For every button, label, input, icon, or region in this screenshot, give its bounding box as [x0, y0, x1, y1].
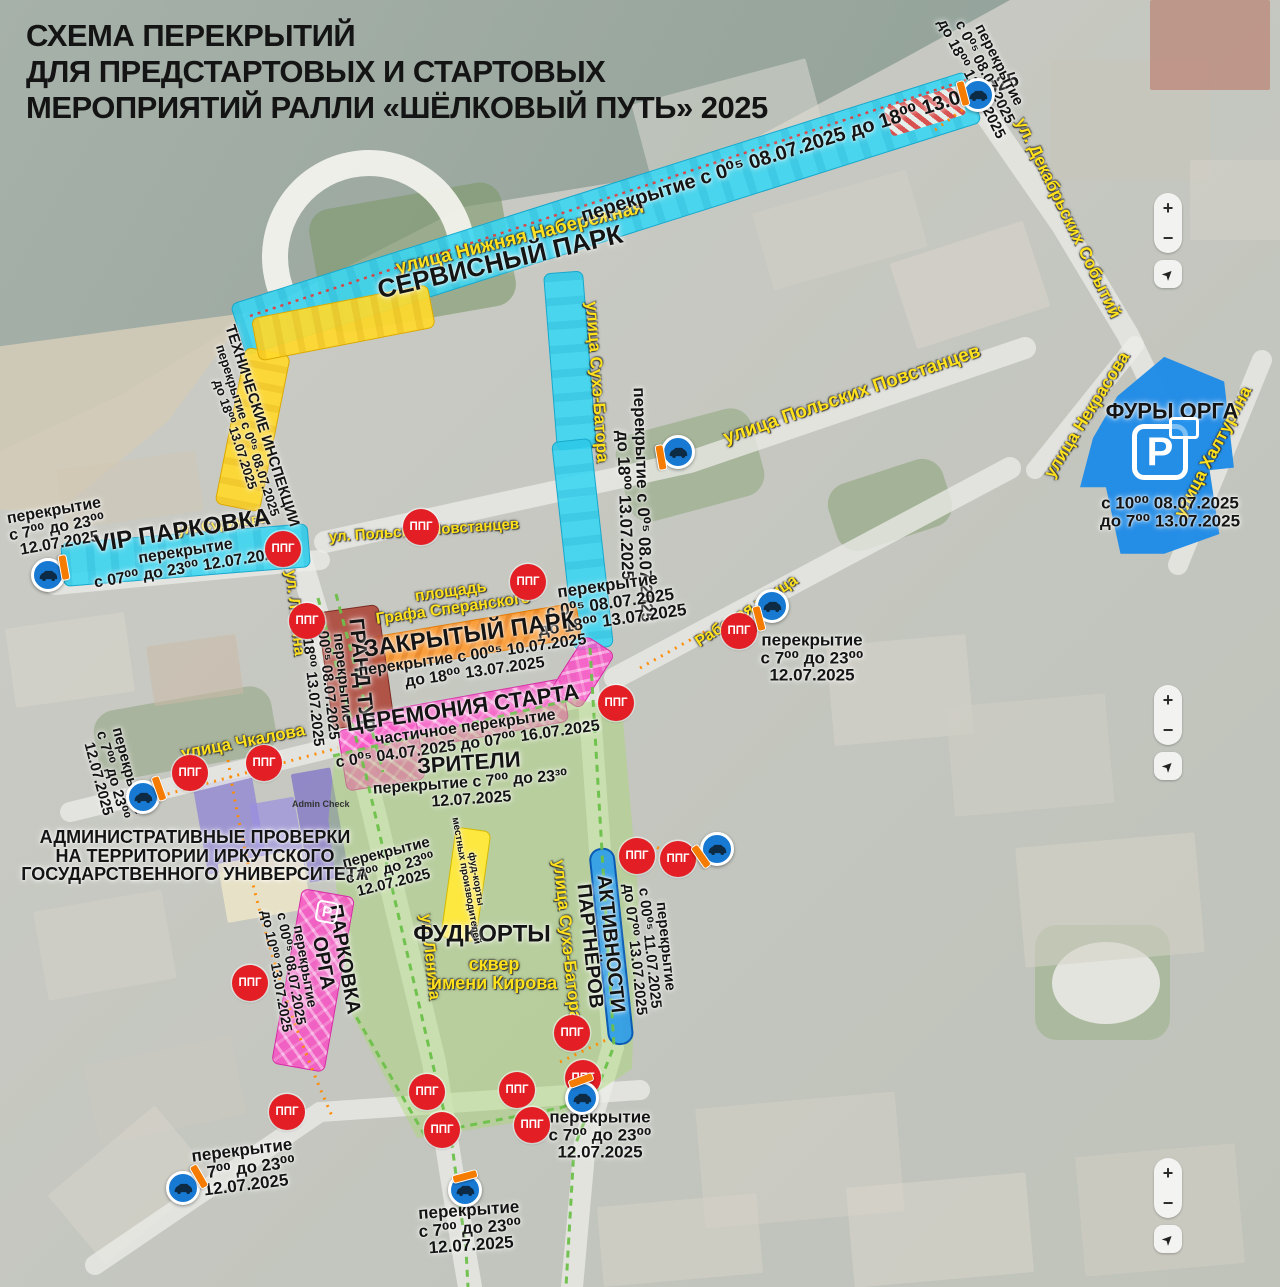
parking-icon: P	[1132, 424, 1188, 480]
parking-letter: P	[321, 903, 334, 921]
locate-button[interactable]: ➤	[1154, 260, 1182, 288]
car-icon	[762, 600, 782, 612]
admin-checks-label: АДМИНИСТРАТИВНЫЕ ПРОВЕРКИ НА ТЕРРИТОРИИ …	[21, 828, 368, 884]
zoom-pill: + −	[1154, 685, 1182, 745]
zoom-pill: + −	[1154, 1158, 1182, 1218]
title-line: МЕРОПРИЯТИЙ РАЛЛИ «ШЁЛКОВЫЙ ПУТЬ» 2025	[26, 90, 768, 126]
zoom-out-button[interactable]: −	[1154, 715, 1182, 745]
closure-line: с 10⁰⁰ 08.07.2025	[1100, 494, 1240, 512]
car-icon	[572, 1092, 592, 1104]
admin-check-building-tag: Admin Check	[292, 800, 350, 810]
ppg-badge: ППГ	[514, 1107, 550, 1143]
street-label-kirova: сквер имени Кирова	[431, 955, 557, 993]
ppg-badge: ППГ	[232, 965, 268, 1001]
closure-line: 12.07.2025	[549, 1144, 652, 1162]
ppg-badge: ППГ	[499, 1072, 535, 1108]
zone-title: АДМИНИСТРАТИВНЫЕ ПРОВЕРКИ	[21, 828, 368, 847]
car-icon	[668, 446, 688, 458]
rabochaya-closure-label: перекрытие с 7⁰⁰ до 23⁰⁰ 12.07.2025	[761, 631, 864, 684]
ppg-badge: ППГ	[289, 603, 325, 639]
closure-line: с 7⁰⁰ до 23⁰⁰	[549, 1126, 652, 1144]
parking-icon: P	[314, 899, 339, 924]
closure-line: перекрытие	[761, 631, 864, 649]
ppg-badge: ППГ	[619, 838, 655, 874]
closure-line: с 7⁰⁰ до 23⁰⁰	[761, 649, 864, 667]
map-canvas: СХЕМА ПЕРЕКРЫТИЙ ДЛЯ ПРЕДСТАРТОВЫХ И СТА…	[0, 0, 1280, 1287]
ppg-badge: ППГ	[598, 685, 634, 721]
square-east-closure-label: перекрытие с 7⁰⁰ до 23⁰⁰ 12.07.2025	[549, 1108, 652, 1161]
ppg-badge: ППГ	[265, 531, 301, 567]
ppg-badge: ППГ	[554, 1015, 590, 1051]
locate-arrow-icon: ➤	[1158, 264, 1178, 284]
car-icon	[455, 1184, 475, 1196]
ppg-badge: ППГ	[409, 1074, 445, 1110]
ppg-badge: ППГ	[424, 1112, 460, 1148]
page-title: СХЕМА ПЕРЕКРЫТИЙ ДЛЯ ПРЕДСТАРТОВЫХ И СТА…	[26, 18, 768, 126]
truck-icon	[1169, 417, 1199, 439]
closure-line: 12.07.2025	[761, 667, 864, 685]
title-line: СХЕМА ПЕРЕКРЫТИЙ	[26, 18, 768, 54]
ppg-badge: ППГ	[510, 564, 546, 600]
ppg-badge: ППГ	[269, 1094, 305, 1130]
map-controls: + − ➤	[1154, 1158, 1182, 1253]
zoom-in-button[interactable]: +	[1154, 1158, 1182, 1188]
street-label-line: имени Кирова	[431, 974, 557, 993]
zoom-pill: + −	[1154, 193, 1182, 253]
ppg-badge: ППГ	[403, 509, 439, 545]
map-controls: + − ➤	[1154, 685, 1182, 780]
title-line: ДЛЯ ПРЕДСТАРТОВЫХ И СТАРТОВЫХ	[26, 54, 768, 90]
street-label-line: сквер	[431, 955, 557, 974]
car-icon	[173, 1182, 193, 1194]
car-icon	[968, 89, 988, 101]
ppg-badge: ППГ	[172, 755, 208, 791]
locate-button[interactable]: ➤	[1154, 752, 1182, 780]
bottom-center-closure-label: перекрытие с 7⁰⁰ до 23⁰⁰ 12.07.2025	[417, 1198, 523, 1258]
locate-arrow-icon: ➤	[1158, 756, 1178, 776]
closure-line: до 7⁰⁰ 13.07.2025	[1100, 512, 1240, 530]
car-icon	[707, 843, 727, 855]
locate-arrow-icon: ➤	[1158, 1229, 1178, 1249]
zoom-out-button[interactable]: −	[1154, 223, 1182, 253]
closure-line: перекрытие	[549, 1108, 652, 1126]
zoom-in-button[interactable]: +	[1154, 193, 1182, 223]
locate-button[interactable]: ➤	[1154, 1225, 1182, 1253]
car-icon	[133, 791, 153, 803]
zoom-in-button[interactable]: +	[1154, 685, 1182, 715]
map-controls: + − ➤	[1154, 193, 1182, 288]
zone-title: НА ТЕРРИТОРИИ ИРКУТСКОГО	[21, 847, 368, 866]
zoom-out-button[interactable]: −	[1154, 1188, 1182, 1218]
car-icon	[38, 569, 58, 581]
ppg-badge: ППГ	[246, 745, 282, 781]
zone-title: ГОСУДАРСТВЕННОГО УНИВЕРСИТЕТА	[21, 865, 368, 884]
fury-orga-dates-label: с 10⁰⁰ 08.07.2025 до 7⁰⁰ 13.07.2025	[1100, 494, 1240, 529]
ppg-badge: ППГ	[721, 613, 757, 649]
